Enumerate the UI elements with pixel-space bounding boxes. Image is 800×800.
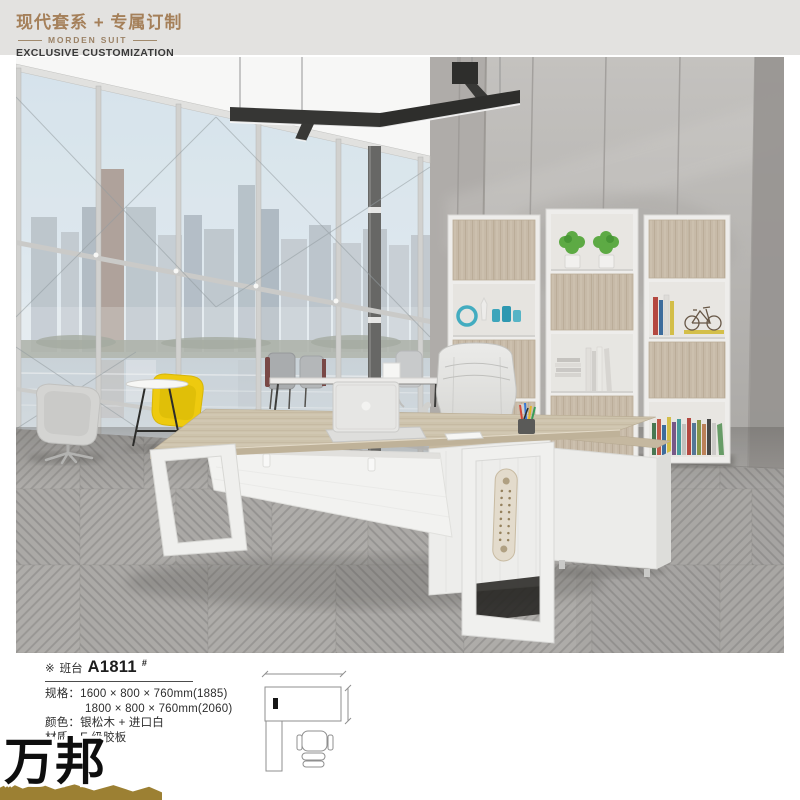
brand-logo-block: 现代套系 + 专属订制 MORDEN SUIT EXCLUSIVE CUSTOM… [16, 8, 182, 59]
logo-series-en: MORDEN SUIT [48, 35, 127, 45]
dimension-diagram [255, 666, 375, 798]
brand-name: 万邦 [4, 737, 106, 787]
dash-right [133, 40, 157, 41]
spec-line-size-1: 规格：1600 × 800 × 760mm(1885) [45, 687, 232, 702]
office-scene [16, 57, 784, 653]
product-info: ※ 班台 A1811 # 规格：1600 × 800 × 760mm(1885)… [45, 658, 232, 745]
vignette-overlay [16, 57, 784, 653]
product-category: 班台 [60, 660, 83, 676]
product-marker: ※ [45, 661, 55, 675]
cable-hole-mark [273, 698, 278, 709]
chair-outline [297, 731, 333, 767]
width-dimension-line [262, 671, 346, 677]
header-strip: 现代套系 + 专属订制 MORDEN SUIT EXCLUSIVE CUSTOM… [0, 0, 800, 55]
return-cabinet-outline [266, 721, 282, 771]
product-model-suffix: # [142, 658, 147, 668]
title-underline [45, 681, 193, 682]
dash-left [18, 40, 42, 41]
product-title: ※ 班台 A1811 # [45, 658, 232, 677]
spec-line-color: 颜色：银松木 + 进口白 [45, 716, 232, 731]
showroom-photo [16, 57, 784, 653]
catalog-page: 现代套系 + 专属订制 MORDEN SUIT EXCLUSIVE CUSTOM… [0, 0, 800, 800]
spec-line-size-2: 1800 × 800 × 760mm(2060) [45, 702, 232, 717]
logo-series-row: MORDEN SUIT [18, 35, 182, 45]
brand-logo: 万邦 [0, 735, 240, 800]
depth-dimension-line [345, 685, 351, 724]
product-model: A1811 [88, 658, 137, 677]
logo-title-cn: 现代套系 + 专属订制 [16, 8, 182, 33]
